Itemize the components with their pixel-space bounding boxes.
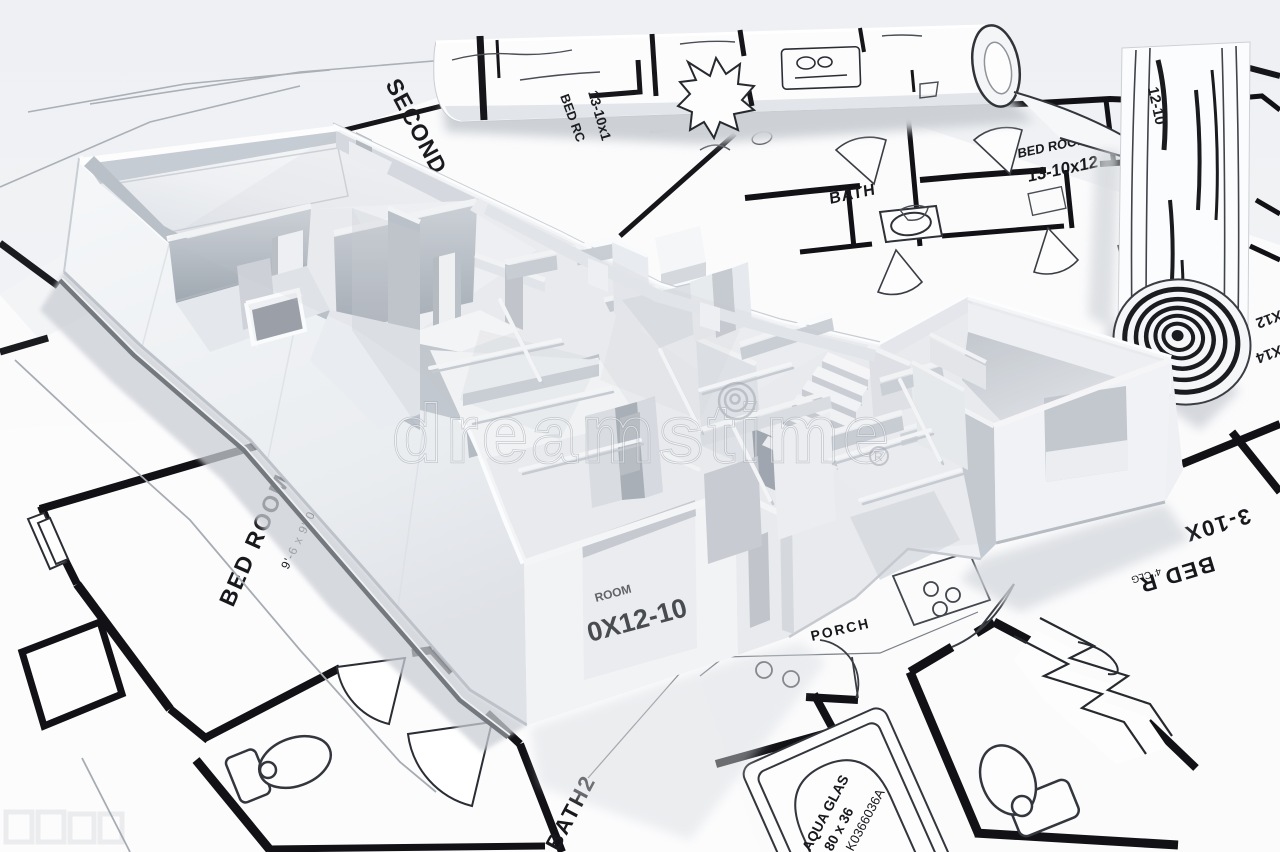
svg-text:R: R [874,450,883,464]
svg-text:dreamstime: dreamstime [392,389,892,480]
